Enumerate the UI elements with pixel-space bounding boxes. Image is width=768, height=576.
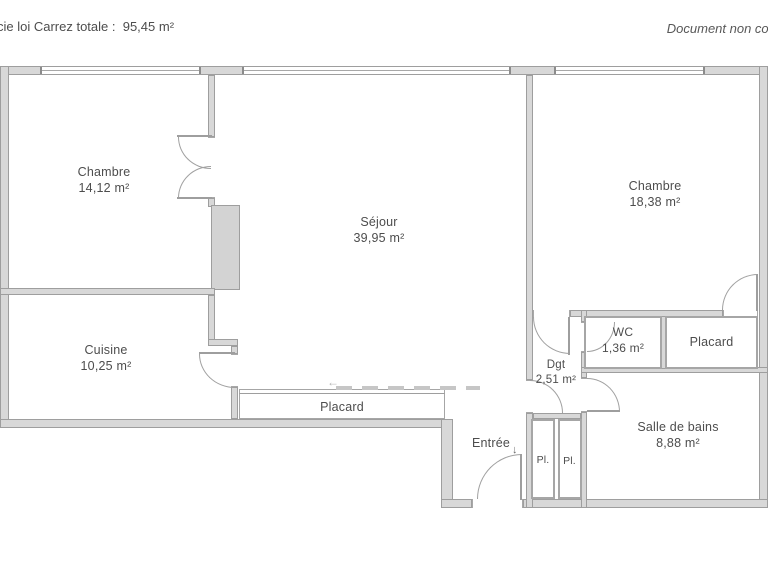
room-name: WC xyxy=(586,324,660,340)
room-label-living: Séjour 39,95 m² xyxy=(318,214,440,246)
watermark xyxy=(336,386,480,390)
wall xyxy=(208,339,238,346)
room-area: 39,95 m² xyxy=(318,230,440,246)
room-name: Chambre xyxy=(594,178,716,194)
room-area: 10,25 m² xyxy=(45,358,167,374)
room-name: Placard xyxy=(241,399,443,415)
room-label-bedroom-left: Chambre 14,12 m² xyxy=(43,164,165,196)
window-glazing xyxy=(556,70,703,71)
room-label-closet-bottom: Placard xyxy=(241,399,443,415)
window-jamb xyxy=(703,67,705,74)
wall xyxy=(0,288,215,295)
door-swing-arc xyxy=(722,274,758,310)
window-glazing xyxy=(244,70,509,71)
room-label-bathroom: Salle de bains 8,88 m² xyxy=(598,419,758,451)
room-name: Placard xyxy=(665,334,758,350)
door-leaf xyxy=(568,317,570,355)
door-leaf xyxy=(199,352,235,354)
room-name: Dgt xyxy=(525,358,587,373)
room-area: 8,88 m² xyxy=(598,435,758,451)
room-name: Entrée xyxy=(449,435,533,451)
bedroom-door-opening xyxy=(533,310,570,317)
wall xyxy=(231,387,238,419)
door-swing-arc xyxy=(178,137,211,169)
window xyxy=(554,67,705,74)
door-swing-arc xyxy=(199,354,235,388)
closet-front-line xyxy=(239,393,445,394)
door-swing-arc xyxy=(178,166,211,198)
door-swing-arc xyxy=(477,454,522,499)
room-label-closet-small-1: Pl. xyxy=(531,454,555,467)
window-glazing xyxy=(42,70,199,71)
room-label-closet-right: Placard xyxy=(665,334,758,350)
room-name: Cuisine xyxy=(45,342,167,358)
duct-shaft xyxy=(211,205,240,290)
floor-plan: cie loi Carrez totale : 95,45 m² Documen… xyxy=(0,0,768,576)
room-name: Salle de bains xyxy=(598,419,758,435)
door-leaf xyxy=(520,454,522,500)
room-area: 14,12 m² xyxy=(43,180,165,196)
room-name: Pl. xyxy=(557,455,582,468)
disclaimer-text: Document non cor xyxy=(667,21,768,36)
room-name: Chambre xyxy=(43,164,165,180)
room-label-entry: Entrée xyxy=(449,435,533,451)
window xyxy=(242,67,511,74)
door-leaf xyxy=(177,135,212,137)
window-jamb xyxy=(554,67,556,74)
room-label-wc: WC 1,36 m² xyxy=(586,324,660,356)
room-label-hallway: Dgt 2,51 m² xyxy=(525,358,587,388)
carrez-area-text: cie loi Carrez totale : 95,45 m² xyxy=(0,19,174,34)
door-swing-arc xyxy=(533,317,570,354)
wall xyxy=(0,66,9,428)
wall xyxy=(441,499,472,508)
room-label-closet-small-2: Pl. xyxy=(557,455,582,468)
room-area: 1,36 m² xyxy=(586,340,660,356)
room-label-bedroom-right: Chambre 18,38 m² xyxy=(594,178,716,210)
entry-door-threshold xyxy=(472,499,523,508)
wall xyxy=(208,295,215,340)
door-leaf xyxy=(177,197,212,199)
wall xyxy=(441,419,453,508)
room-name: Pl. xyxy=(531,454,555,467)
door-leaf xyxy=(756,274,758,311)
room-area: 18,38 m² xyxy=(594,194,716,210)
wall xyxy=(208,75,215,137)
room-area: 2,51 m² xyxy=(525,373,587,388)
wall xyxy=(759,66,768,508)
window-jamb xyxy=(199,67,201,74)
window-jamb xyxy=(242,67,244,74)
wall xyxy=(0,419,453,428)
wall xyxy=(523,499,768,508)
wall xyxy=(526,75,533,380)
window-jamb xyxy=(40,67,42,74)
room-label-kitchen: Cuisine 10,25 m² xyxy=(45,342,167,374)
door-swing-arc xyxy=(587,378,620,412)
door-leaf xyxy=(587,410,620,412)
window-jamb xyxy=(509,67,511,74)
window xyxy=(40,67,201,74)
room-name: Séjour xyxy=(318,214,440,230)
